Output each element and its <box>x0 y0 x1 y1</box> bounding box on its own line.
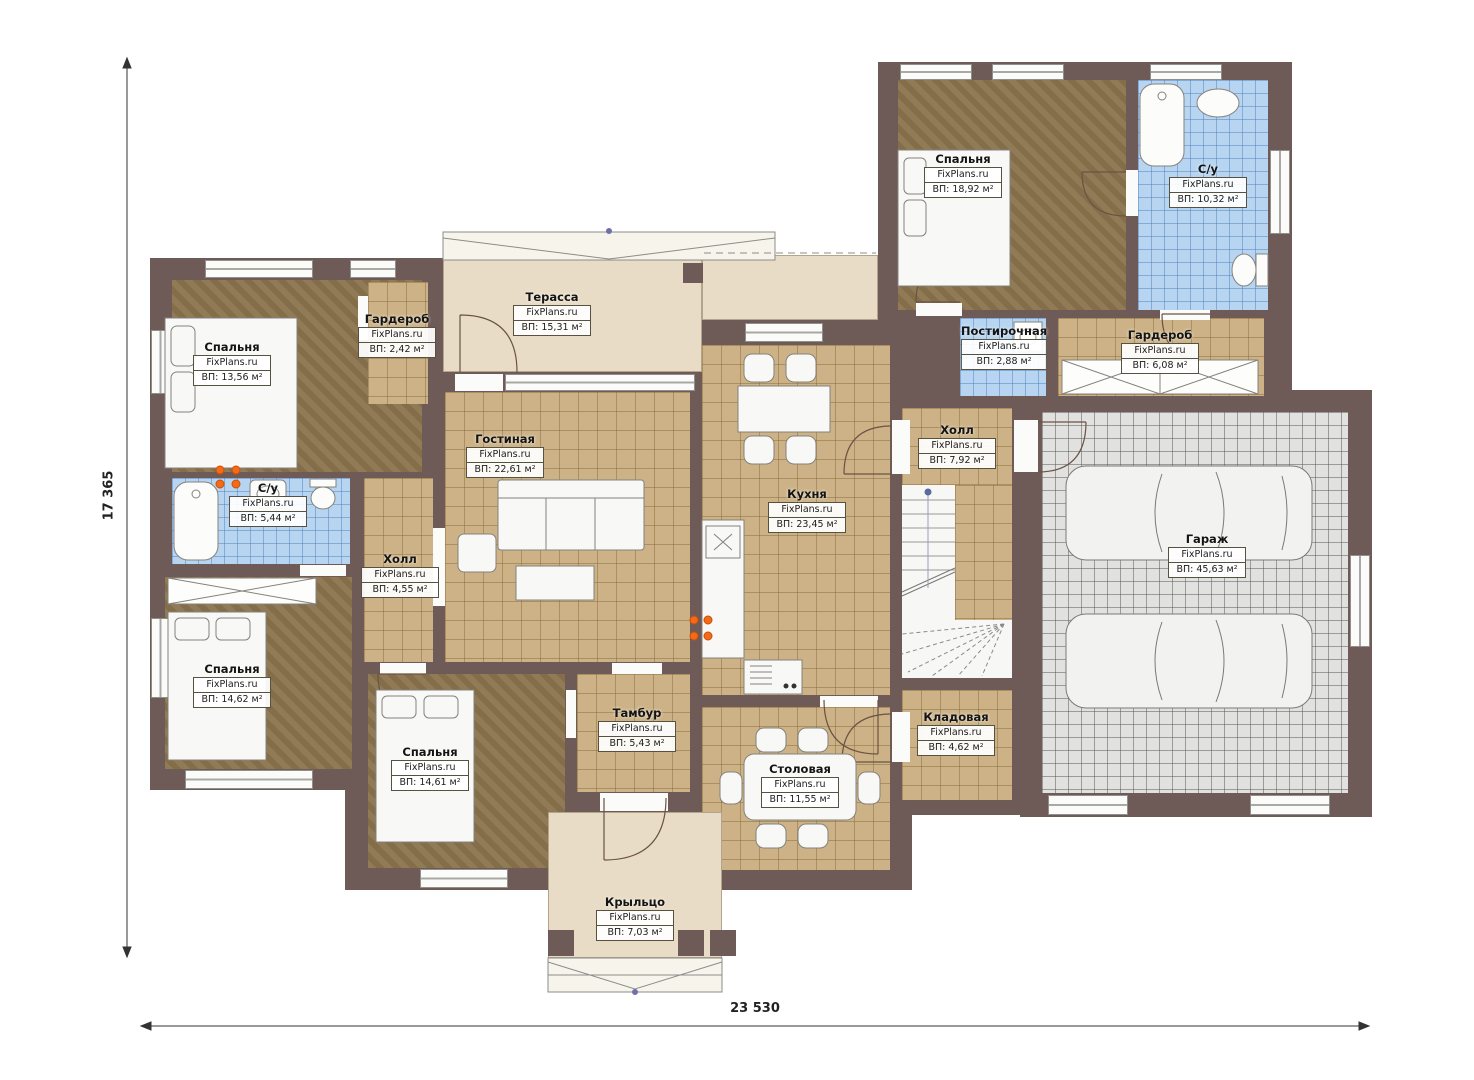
dimension-width: 23 530 <box>730 1001 780 1016</box>
room-name: Тамбур <box>598 706 676 720</box>
floor-garage <box>1042 412 1348 793</box>
window <box>1350 555 1370 647</box>
watermark: FixPlans.ru <box>391 760 469 776</box>
room-area: ВП: 6,08 м² <box>1121 358 1199 374</box>
watermark: FixPlans.ru <box>361 567 439 583</box>
watermark: FixPlans.ru <box>513 305 591 321</box>
floor-stairs-fan <box>902 620 1012 678</box>
room-name: Гардероб <box>1121 328 1199 342</box>
watermark: FixPlans.ru <box>768 502 846 518</box>
room-area: ВП: 45,63 м² <box>1168 562 1246 578</box>
room-name: Холл <box>918 423 996 437</box>
room-area: ВП: 10,32 м² <box>1169 192 1247 208</box>
room-name: Холл <box>361 552 439 566</box>
window <box>420 869 508 888</box>
room-area: ВП: 18,92 м² <box>924 182 1002 198</box>
watermark: FixPlans.ru <box>917 725 995 741</box>
window <box>185 770 313 789</box>
watermark: FixPlans.ru <box>193 677 271 693</box>
room-area: ВП: 7,92 м² <box>918 453 996 469</box>
porch-pillar <box>678 930 704 956</box>
watermark: FixPlans.ru <box>918 438 996 454</box>
door-opening-dining-storage <box>892 712 910 762</box>
room-name: Спальня <box>391 745 469 759</box>
room-name: Гардероб <box>358 312 436 326</box>
window <box>205 260 313 278</box>
watermark: FixPlans.ru <box>466 447 544 463</box>
window <box>1270 150 1290 234</box>
room-label-wardrobe1: Гардероб FixPlans.ru ВП: 2,42 м² <box>358 312 436 358</box>
porch-pillar <box>548 930 574 956</box>
room-area: ВП: 5,44 м² <box>229 511 307 527</box>
watermark: FixPlans.ru <box>1169 177 1247 193</box>
watermark: FixPlans.ru <box>924 167 1002 183</box>
room-name: Спальня <box>193 662 271 676</box>
room-name: С/у <box>229 481 307 495</box>
door-opening-wardrobe2 <box>1160 310 1210 320</box>
room-name: Терасса <box>513 290 591 304</box>
room-name: Кухня <box>768 487 846 501</box>
window <box>745 323 823 342</box>
watermark: FixPlans.ru <box>598 721 676 737</box>
room-label-tambour: Тамбур FixPlans.ru ВП: 5,43 м² <box>598 706 676 752</box>
door-opening-garage <box>1014 420 1038 472</box>
porch-steps-icon <box>548 958 722 995</box>
room-area: ВП: 4,62 м² <box>917 740 995 756</box>
door-opening-kitchen-hall2 <box>892 420 910 474</box>
window <box>900 64 972 80</box>
window <box>350 260 396 278</box>
room-name: С/у <box>1169 162 1247 176</box>
room-area: ВП: 5,43 м² <box>598 736 676 752</box>
watermark: FixPlans.ru <box>961 339 1047 355</box>
room-label-bedroom3: Спальня FixPlans.ru ВП: 14,62 м² <box>193 662 271 708</box>
room-label-bathroom1: С/у FixPlans.ru ВП: 5,44 м² <box>229 481 307 527</box>
room-name: Крыльцо <box>596 895 674 909</box>
room-area: ВП: 14,61 м² <box>391 775 469 791</box>
room-area: ВП: 22,61 м² <box>466 462 544 478</box>
room-area: ВП: 23,45 м² <box>768 517 846 533</box>
door-opening-bathroom2 <box>1126 170 1138 216</box>
room-name: Гостиная <box>466 432 544 446</box>
room-label-living: Гостиная FixPlans.ru ВП: 22,61 м² <box>466 432 544 478</box>
room-label-laundry: Постирочная FixPlans.ru ВП: 2,88 м² <box>961 324 1047 370</box>
watermark: FixPlans.ru <box>596 910 674 926</box>
room-area: ВП: 2,42 м² <box>358 342 436 358</box>
watermark: FixPlans.ru <box>193 355 271 371</box>
garage-door <box>1048 795 1128 815</box>
room-label-bathroom2: С/у FixPlans.ru ВП: 10,32 м² <box>1169 162 1247 208</box>
porch-pillar <box>710 930 736 956</box>
floor-hall2-side <box>955 485 1012 620</box>
room-label-storage: Кладовая FixPlans.ru ВП: 4,62 м² <box>917 710 995 756</box>
watermark: FixPlans.ru <box>761 777 839 793</box>
window <box>151 330 170 394</box>
room-area: ВП: 11,55 м² <box>761 792 839 808</box>
room-label-hall1: Холл FixPlans.ru ВП: 4,55 м² <box>361 552 439 598</box>
room-area: ВП: 15,31 м² <box>513 320 591 336</box>
room-label-kitchen: Кухня FixPlans.ru ВП: 23,45 м² <box>768 487 846 533</box>
room-area: ВП: 14,62 м² <box>193 692 271 708</box>
window <box>1150 64 1222 80</box>
room-label-porch: Крыльцо FixPlans.ru ВП: 7,03 м² <box>596 895 674 941</box>
room-label-garage: Гараж FixPlans.ru ВП: 45,63 м² <box>1168 532 1246 578</box>
door-opening-bathroom1 <box>300 565 346 576</box>
room-name: Спальня <box>924 152 1002 166</box>
watermark: FixPlans.ru <box>1168 547 1246 563</box>
floor-plan: Спальня FixPlans.ru ВП: 13,56 м² Гардеро… <box>0 0 1474 1080</box>
room-area: ВП: 4,55 м² <box>361 582 439 598</box>
room-label-bedroom1: Спальня FixPlans.ru ВП: 13,56 м² <box>193 340 271 386</box>
door-opening-terrace <box>455 374 503 391</box>
door-opening-tambour <box>566 690 576 738</box>
watermark: FixPlans.ru <box>229 496 307 512</box>
room-label-hall2: Холл FixPlans.ru ВП: 7,92 м² <box>918 423 996 469</box>
door-opening-kitchen-dining <box>820 696 878 707</box>
room-name: Постирочная <box>961 324 1047 338</box>
door-opening-living-tambour <box>612 663 662 674</box>
room-label-bedroom4: Спальня FixPlans.ru ВП: 14,61 м² <box>391 745 469 791</box>
garage-door <box>1250 795 1330 815</box>
door-opening-entrance <box>600 793 668 811</box>
room-label-terrace: Терасса FixPlans.ru ВП: 15,31 м² <box>513 290 591 336</box>
terrace-pillar <box>683 263 703 283</box>
door-opening-bedroom2 <box>916 303 962 316</box>
room-area: ВП: 2,88 м² <box>961 354 1047 370</box>
window <box>151 618 170 698</box>
room-label-bedroom2: Спальня FixPlans.ru ВП: 18,92 м² <box>924 152 1002 198</box>
window <box>505 374 695 391</box>
room-name: Спальня <box>193 340 271 354</box>
room-name: Столовая <box>761 762 839 776</box>
dimension-height: 17 365 <box>101 471 116 521</box>
room-label-wardrobe2: Гардероб FixPlans.ru ВП: 6,08 м² <box>1121 328 1199 374</box>
window <box>992 64 1064 80</box>
floor-terrace-strip <box>702 255 878 320</box>
room-area: ВП: 7,03 м² <box>596 925 674 941</box>
watermark: FixPlans.ru <box>1121 343 1199 359</box>
watermark: FixPlans.ru <box>358 327 436 343</box>
door-opening-hall1-bedroom4 <box>380 663 426 674</box>
room-name: Гараж <box>1168 532 1246 546</box>
room-area: ВП: 13,56 м² <box>193 370 271 386</box>
room-name: Кладовая <box>917 710 995 724</box>
room-label-dining: Столовая FixPlans.ru ВП: 11,55 м² <box>761 762 839 808</box>
